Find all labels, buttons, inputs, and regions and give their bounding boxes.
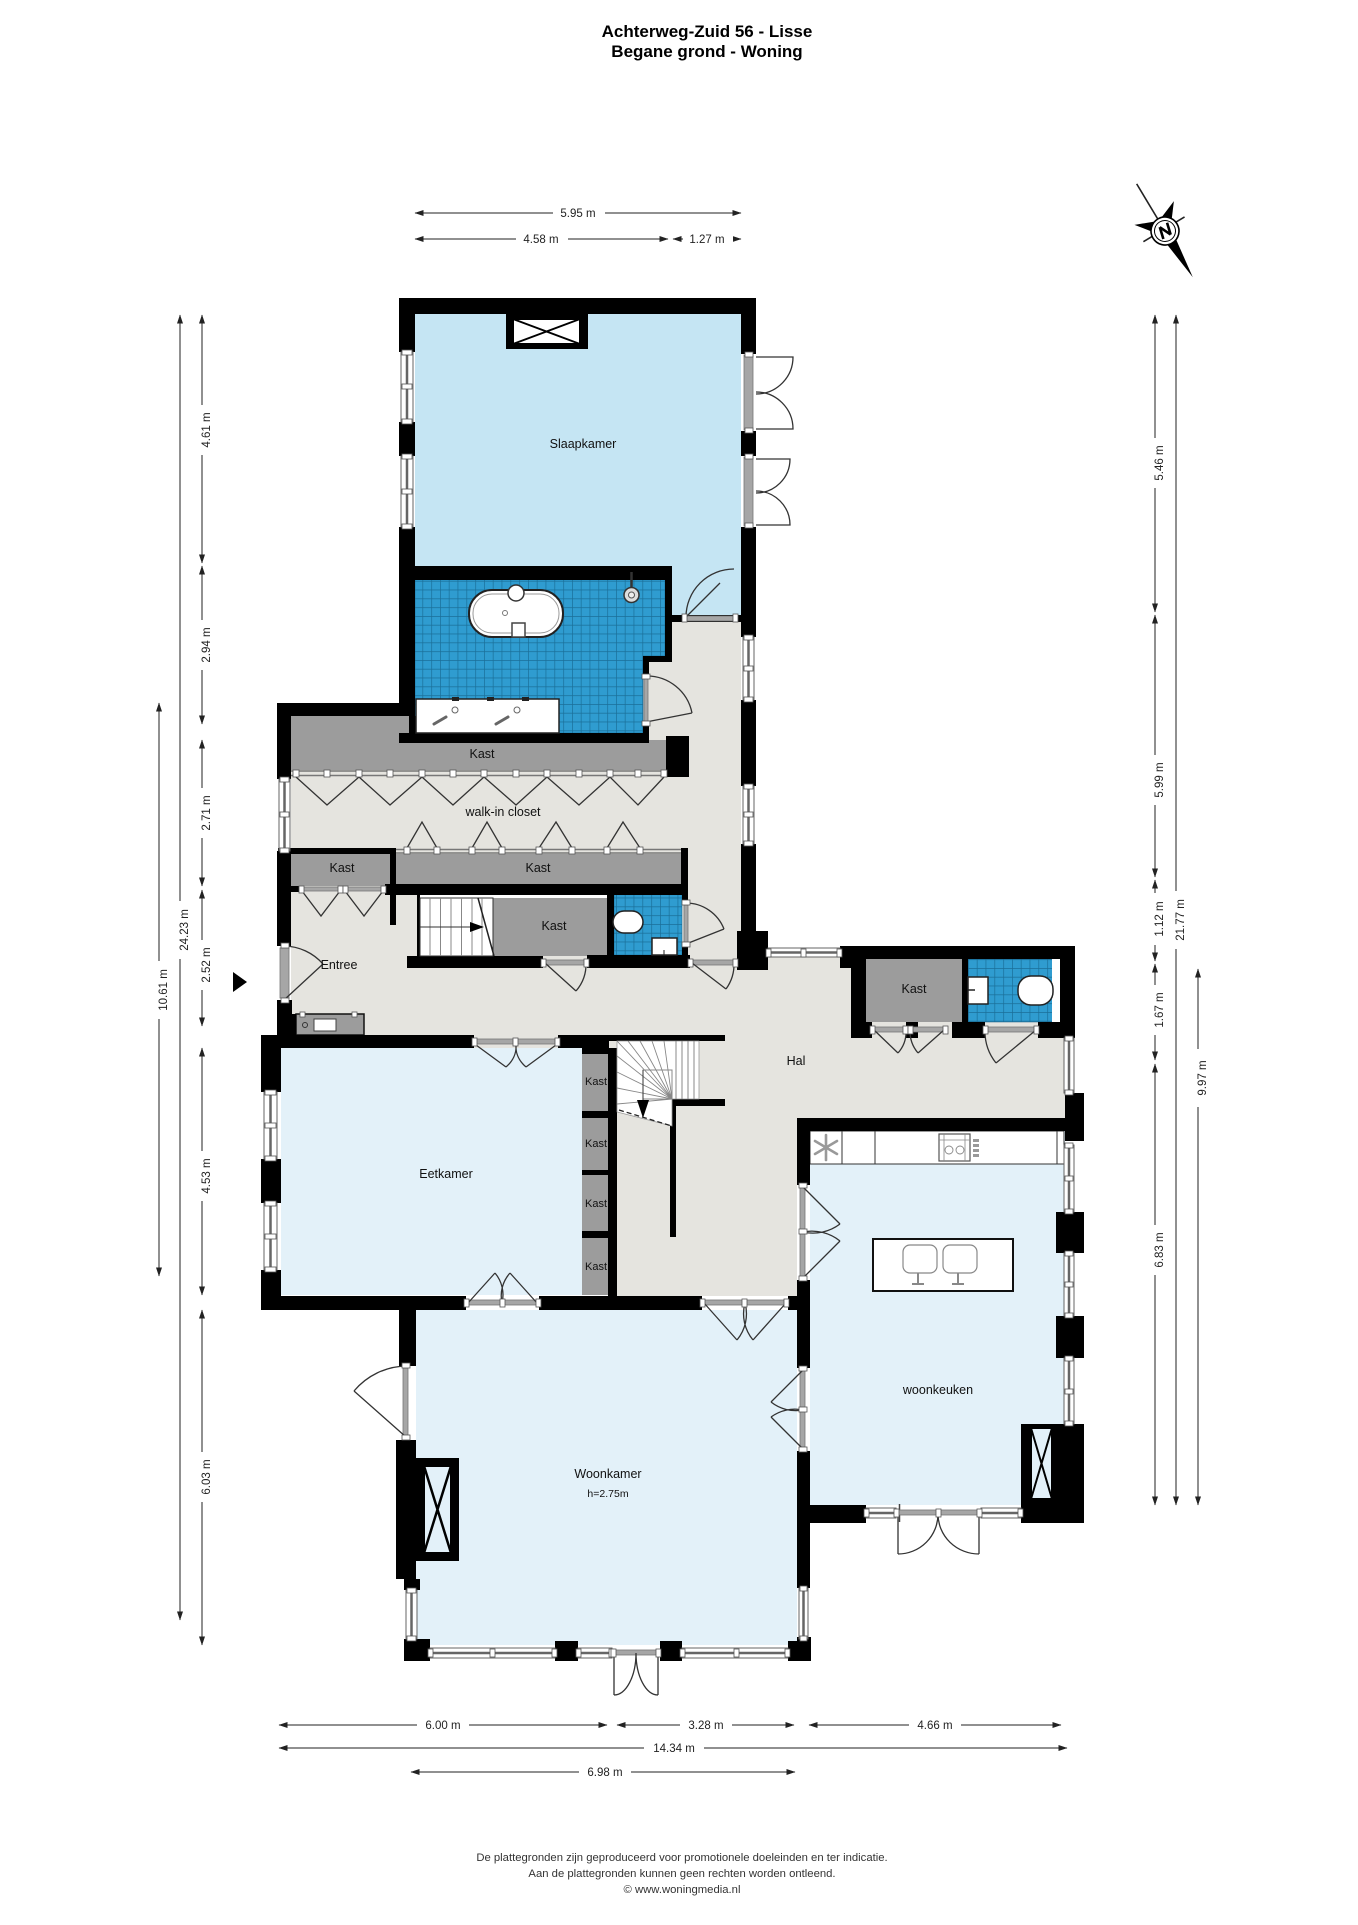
svg-text:walk-in closet: walk-in closet xyxy=(464,805,541,819)
svg-text:Kast: Kast xyxy=(901,982,927,996)
svg-text:5.95 m: 5.95 m xyxy=(560,208,595,220)
svg-text:Begane grond - Woning: Begane grond - Woning xyxy=(611,42,802,61)
svg-text:woonkeuken: woonkeuken xyxy=(902,1383,973,1397)
svg-text:6.03 m: 6.03 m xyxy=(201,1459,213,1494)
svg-text:Kast: Kast xyxy=(525,861,551,875)
svg-text:21.77 m: 21.77 m xyxy=(1175,899,1187,941)
svg-text:Kast: Kast xyxy=(585,1261,607,1273)
svg-text:6.00 m: 6.00 m xyxy=(425,1720,460,1732)
svg-text:6.98 m: 6.98 m xyxy=(587,1767,622,1779)
svg-text:Kast: Kast xyxy=(469,747,495,761)
svg-text:10.61 m: 10.61 m xyxy=(158,969,170,1011)
svg-text:4.66 m: 4.66 m xyxy=(917,1720,952,1732)
svg-text:Aan de plattegronden kunnen ge: Aan de plattegronden kunnen geen rechten… xyxy=(528,1868,835,1880)
svg-text:De plattegronden zijn geproduc: De plattegronden zijn geproduceerd voor … xyxy=(476,1852,887,1864)
svg-text:2.94 m: 2.94 m xyxy=(201,627,213,662)
svg-text:Woonkamer: Woonkamer xyxy=(574,1467,641,1481)
svg-text:Eetkamer: Eetkamer xyxy=(419,1167,473,1181)
svg-text:4.53 m: 4.53 m xyxy=(201,1158,213,1193)
svg-text:h=2.75m: h=2.75m xyxy=(587,1488,628,1500)
svg-text:1.27 m: 1.27 m xyxy=(689,234,724,246)
svg-text:4.61 m: 4.61 m xyxy=(201,412,213,447)
svg-text:Kast: Kast xyxy=(541,919,567,933)
svg-text:14.34 m: 14.34 m xyxy=(653,1743,695,1755)
svg-text:4.58 m: 4.58 m xyxy=(523,234,558,246)
svg-text:1.12 m: 1.12 m xyxy=(1154,901,1166,936)
svg-text:1.67 m: 1.67 m xyxy=(1154,992,1166,1027)
svg-text:Achterweg-Zuid 56 - Lisse: Achterweg-Zuid 56 - Lisse xyxy=(602,22,813,41)
svg-text:5.99 m: 5.99 m xyxy=(1154,762,1166,797)
svg-text:Kast: Kast xyxy=(585,1076,607,1088)
svg-text:2.71 m: 2.71 m xyxy=(201,795,213,830)
svg-text:3.28 m: 3.28 m xyxy=(688,1720,723,1732)
svg-text:Kast: Kast xyxy=(585,1198,607,1210)
svg-text:Slaapkamer: Slaapkamer xyxy=(550,437,617,451)
svg-text:24.23 m: 24.23 m xyxy=(179,909,191,951)
svg-text:© www.woningmedia.nl: © www.woningmedia.nl xyxy=(624,1884,741,1896)
svg-text:Entree: Entree xyxy=(321,958,358,972)
svg-text:9.97 m: 9.97 m xyxy=(1197,1060,1209,1095)
svg-text:5.46 m: 5.46 m xyxy=(1154,445,1166,480)
svg-text:6.83 m: 6.83 m xyxy=(1154,1232,1166,1267)
svg-text:Hal: Hal xyxy=(787,1054,806,1068)
svg-text:2.52 m: 2.52 m xyxy=(201,947,213,982)
svg-text:Kast: Kast xyxy=(329,861,355,875)
svg-text:Kast: Kast xyxy=(585,1138,607,1150)
